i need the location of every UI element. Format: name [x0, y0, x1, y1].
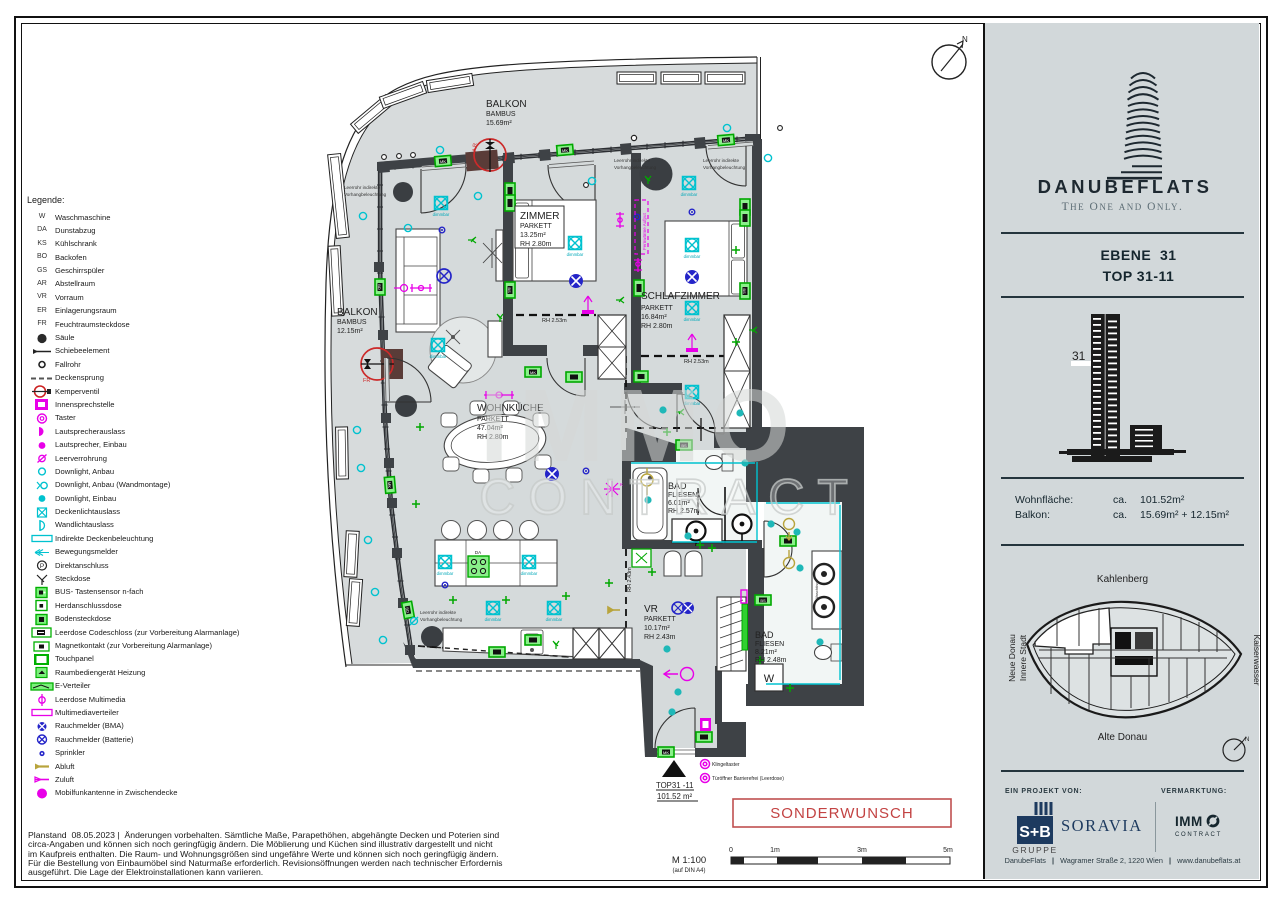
svg-text:PARKETT: PARKETT [641, 305, 673, 312]
svg-text:Vorhangbeleuchtung: Vorhangbeleuchtung [420, 617, 463, 622]
svg-text:5m: 5m [943, 847, 953, 854]
svg-text:RH 2.53m: RH 2.53m [684, 359, 709, 365]
svg-text:15.69m²: 15.69m² [486, 120, 512, 127]
svg-text:DA: DA [475, 550, 481, 555]
svg-text:W: W [764, 673, 775, 685]
svg-text:dimmbar: dimmbar [681, 192, 698, 197]
svg-text:101.52 m²: 101.52 m² [657, 792, 693, 801]
svg-text:Leerrohr indirekte: Leerrohr indirekte [344, 185, 380, 190]
svg-text:BAD: BAD [755, 630, 774, 640]
svg-text:MK: MK [723, 138, 730, 144]
svg-text:RH 2.48m: RH 2.48m [755, 657, 787, 664]
svg-text:dimmbar: dimmbar [684, 254, 701, 259]
svg-text:P: P [40, 563, 44, 570]
svg-text:RH 2.53m: RH 2.53m [542, 318, 567, 324]
svg-text:GRUPPE: GRUPPE [1012, 845, 1058, 855]
svg-text:MK: MK [440, 159, 447, 165]
svg-text:dimmbar: dimmbar [546, 617, 563, 622]
svg-text:BS: BS [760, 598, 766, 603]
svg-text:dimmbar: dimmbar [437, 571, 454, 576]
svg-text:3m: 3m [857, 847, 867, 854]
svg-text:1m: 1m [770, 847, 780, 854]
svg-text:M 1:100: M 1:100 [672, 855, 706, 866]
svg-text:BS: BS [742, 288, 747, 294]
svg-text:Vorhangbeleuchtung: Vorhangbeleuchtung [703, 165, 746, 170]
svg-text:Türöffner Barrierefrei (Leerdo: Türöffner Barrierefrei (Leerdose) [712, 776, 784, 782]
svg-text:dimmbar: dimmbar [684, 317, 701, 322]
svg-text:ZIMMER: ZIMMER [520, 211, 559, 222]
svg-text:FR: FR [363, 378, 370, 384]
svg-text:PARKETT: PARKETT [520, 223, 552, 230]
svg-text:dimmbar: dimmbar [521, 571, 538, 576]
svg-text:N: N [1245, 737, 1249, 743]
svg-text:Leerrohr indirekte: Leerrohr indirekte [420, 610, 456, 615]
svg-text:13.25m²: 13.25m² [520, 232, 546, 239]
svg-text:MK: MK [387, 482, 393, 489]
svg-text:Vorhangbeleuchtung: Vorhangbeleuchtung [344, 192, 387, 197]
svg-text:Fernwärme Aufput: Fernwärme Aufput [642, 212, 647, 250]
svg-text:SONDERWUNSCH: SONDERWUNSCH [770, 805, 913, 822]
svg-text:Leerrohr indirekte: Leerrohr indirekte [703, 158, 739, 163]
svg-text:dimmbar: dimmbar [430, 354, 447, 359]
svg-text:SCHLAFZIMMER: SCHLAFZIMMER [641, 291, 720, 302]
svg-text:Vorhangbeleuchtung: Vorhangbeleuchtung [614, 165, 657, 170]
svg-text:TOP31 -11: TOP31 -11 [656, 781, 693, 790]
svg-text:BALKON: BALKON [486, 99, 527, 110]
svg-text:BAMBUS: BAMBUS [486, 111, 516, 118]
svg-text:RH 2.43m: RH 2.43m [644, 634, 676, 641]
svg-text:CONTRACT: CONTRACT [1175, 832, 1222, 838]
svg-text:VR: VR [644, 604, 658, 615]
svg-text:IMM: IMM [1175, 814, 1203, 829]
svg-text:10.17m²: 10.17m² [644, 625, 670, 632]
svg-text:FLIESEN: FLIESEN [755, 641, 784, 648]
svg-text:BD: BD [405, 607, 411, 613]
svg-text:BAMBUS: BAMBUS [337, 319, 367, 326]
svg-text:BS: BS [507, 287, 512, 293]
svg-text:IMMO: IMMO [480, 368, 800, 483]
svg-text:8.21m²: 8.21m² [755, 649, 777, 656]
svg-text:RH 2.43m: RH 2.43m [627, 567, 633, 592]
svg-text:BD: BD [377, 284, 382, 290]
svg-text:0: 0 [729, 847, 733, 854]
svg-text:MK: MK [663, 750, 669, 755]
svg-text:RH 2.80m: RH 2.80m [641, 323, 673, 330]
svg-text:dimmbar: dimmbar [567, 252, 584, 257]
svg-text:(auf DIN A4): (auf DIN A4) [672, 868, 705, 874]
svg-text:16.84m²: 16.84m² [641, 314, 667, 321]
svg-text:N: N [962, 35, 968, 44]
svg-text:S+B: S+B [1019, 824, 1051, 841]
svg-text:dimmbar: dimmbar [485, 617, 502, 622]
svg-text:12.15m²: 12.15m² [337, 328, 363, 335]
svg-text:PARKETT: PARKETT [644, 616, 676, 623]
svg-text:Waschtisch: Waschtisch [814, 580, 819, 600]
svg-text:dimmbar: dimmbar [433, 212, 450, 217]
svg-text:A R: A R [472, 143, 479, 152]
svg-text:RH 2.80m: RH 2.80m [520, 241, 552, 248]
svg-text:MK: MK [562, 148, 569, 154]
svg-text:Klingeltaster: Klingeltaster [712, 762, 740, 768]
svg-text:BALKON: BALKON [337, 307, 378, 318]
svg-text:CONTRACT: CONTRACT [479, 469, 861, 525]
svg-text:Leerrohr indirekte: Leerrohr indirekte [614, 158, 650, 163]
